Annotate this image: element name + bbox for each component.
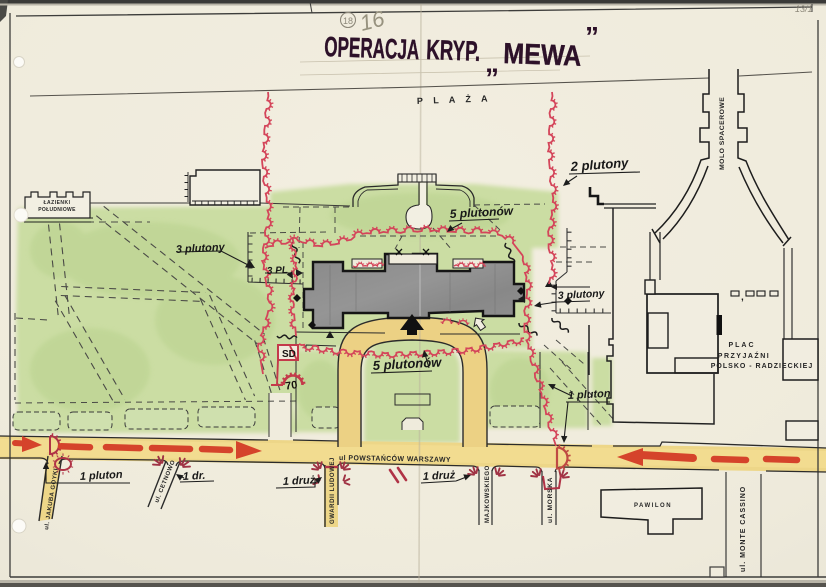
svg-text:POLSKO - RADZIECKIEJ: POLSKO - RADZIECKIEJ [711, 363, 813, 370]
svg-text:1 pluton: 1 pluton [568, 388, 612, 402]
svg-text:3 plutony: 3 plutony [558, 288, 606, 302]
svg-text:MAJKOWSKIEGO: MAJKOWSKIEGO [485, 465, 491, 523]
svg-text:70: 70 [285, 379, 299, 393]
svg-text:1 druż: 1 druż [283, 474, 316, 488]
svg-text:1 dr.: 1 dr. [183, 470, 206, 483]
svg-text:GWARDII LUDOWEJ: GWARDII LUDOWEJ [330, 457, 336, 524]
svg-text:13/1: 13/1 [795, 4, 813, 14]
svg-text:KRYP.: KRYP. [426, 34, 481, 67]
svg-text:POŁUDNIOWE: POŁUDNIOWE [38, 207, 76, 213]
svg-text:MEWA: MEWA [503, 38, 582, 73]
svg-text:1 pluton: 1 pluton [80, 469, 124, 483]
svg-text:ul. MORSKA: ul. MORSKA [547, 477, 554, 523]
svg-text:1 druż: 1 druż [423, 469, 456, 483]
svg-text:18: 18 [343, 16, 353, 26]
svg-text:”: ” [585, 21, 599, 52]
svg-text:PAWILON: PAWILON [634, 503, 672, 509]
svg-text:,: , [741, 292, 744, 303]
svg-text:SD: SD [282, 349, 296, 360]
svg-text:MOLO SPACEROWE: MOLO SPACEROWE [719, 97, 726, 170]
svg-text:3 PL: 3 PL [267, 265, 289, 277]
svg-text:„: „ [485, 47, 499, 78]
svg-text:ŁAZIENKI: ŁAZIENKI [43, 200, 70, 206]
svg-text:OPERACJA: OPERACJA [324, 31, 420, 65]
svg-text:PRZYJAŹNI: PRZYJAŹNI [718, 351, 770, 360]
svg-text:ul. MONTE CASSINO: ul. MONTE CASSINO [740, 486, 747, 572]
svg-text:PLAC: PLAC [728, 342, 755, 349]
